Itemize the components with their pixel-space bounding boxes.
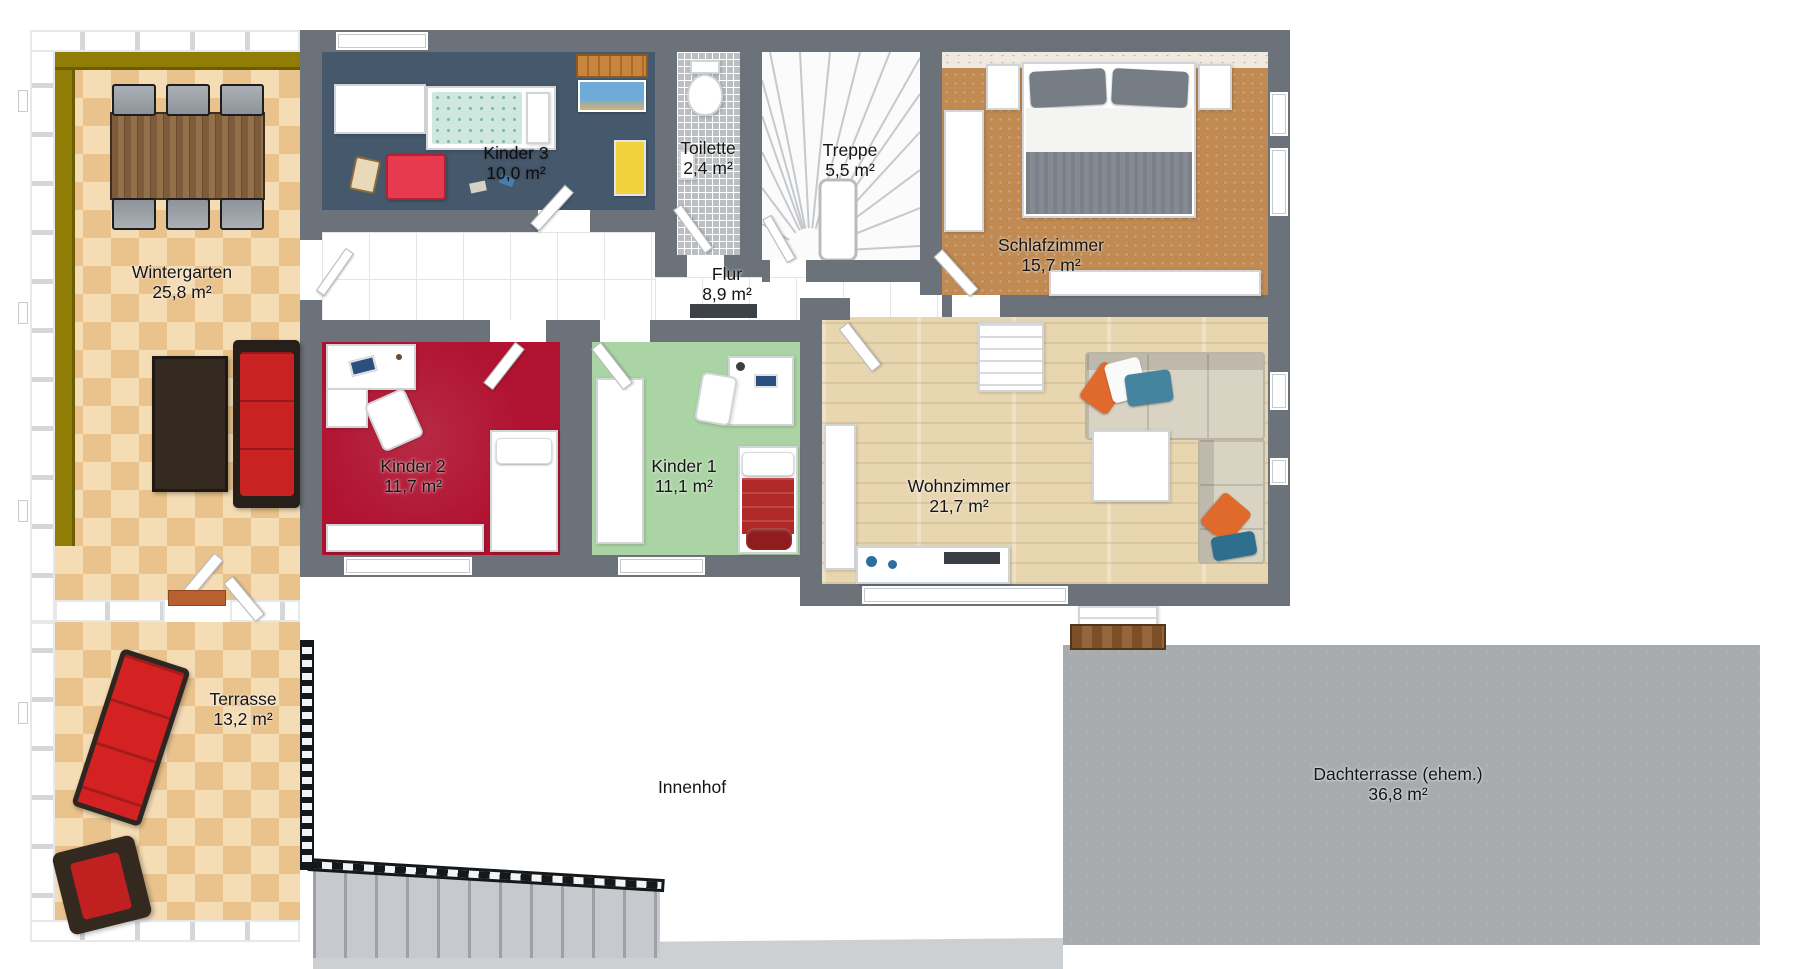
room-name: Dachterrasse (ehem.) — [1313, 764, 1482, 784]
sideboard — [152, 356, 228, 492]
dining-chair — [112, 84, 156, 116]
room-label-wintergarten: Wintergarten 25,8 m² — [132, 262, 232, 302]
window-k1-south — [618, 557, 705, 575]
toilet-bowl — [687, 74, 723, 116]
wall-treppe-bottom — [762, 260, 770, 282]
room-label-innenhof: Innenhof — [658, 777, 726, 797]
room-area: 13,2 m² — [209, 709, 276, 729]
wall-k3-bottom — [322, 210, 538, 232]
wall-toilette-east — [740, 52, 762, 277]
wall-toilette-bottom — [677, 255, 687, 277]
lowboard-kinder2 — [326, 524, 484, 552]
door-steps-upper — [1078, 604, 1158, 626]
wintergarten-window-band-top — [30, 30, 300, 52]
room-label-kinder1: Kinder 1 11,1 m² — [651, 456, 716, 496]
room-label-wohnzimmer: Wohnzimmer 21,7 m² — [908, 476, 1011, 516]
room-name: Wintergarten — [132, 262, 232, 282]
wall-schlafzimmer-bottom — [942, 295, 952, 317]
room-label-treppe: Treppe 5,5 m² — [823, 140, 878, 180]
sofa-red-cushions — [240, 352, 294, 496]
room-name: Treppe — [823, 140, 878, 160]
room-area: 11,1 m² — [651, 476, 716, 496]
room-name: Innenhof — [658, 777, 726, 797]
room-area: 36,8 m² — [1313, 784, 1482, 804]
wall-top — [300, 30, 1290, 52]
coffee-table — [1092, 430, 1170, 502]
dining-chair — [166, 84, 210, 116]
wall-k2-k1 — [560, 320, 592, 577]
bookcase — [978, 322, 1044, 392]
wintergarten-olive-frame-top — [55, 52, 300, 70]
bed-pillow-left — [1029, 68, 1107, 108]
wintergarten-window-band-left — [30, 30, 55, 622]
room-area: 8,9 m² — [702, 284, 752, 304]
toilet-tank — [690, 60, 720, 74]
window-k2-south — [344, 557, 472, 575]
desk-monitor — [754, 374, 778, 388]
window-wohnzimmer-east — [1270, 458, 1288, 485]
terrace-side-railing — [300, 640, 314, 870]
dining-chair — [112, 198, 156, 230]
room-name: Kinder 2 — [380, 456, 445, 476]
wall-k1-wohnzimmer — [800, 298, 822, 606]
bed-kinder3-duvet — [432, 92, 522, 144]
dresser-wood — [576, 54, 648, 78]
room-area: 11,7 m² — [380, 476, 445, 496]
desk-item — [736, 362, 745, 371]
window-wohnzimmer-east — [1270, 372, 1288, 410]
wall-k3-bottom — [590, 210, 655, 232]
counter-bowl — [888, 560, 897, 569]
room-label-terrasse: Terrasse 13,2 m² — [209, 689, 276, 729]
room-name: Kinder 3 — [483, 143, 548, 163]
wardrobe — [334, 84, 426, 134]
window-wohnzimmer-south — [862, 586, 1068, 604]
room-label-toilette: Toilette 2,4 m² — [680, 138, 735, 178]
room-label-schlafzimmer: Schlafzimmer 15,7 m² — [998, 235, 1104, 275]
room-area: 5,5 m² — [823, 160, 878, 180]
wardrobe-schlafzimmer — [944, 110, 984, 232]
door-steps-wood — [1070, 624, 1166, 650]
bed-duvet — [1026, 152, 1192, 214]
room-name: Wohnzimmer — [908, 476, 1011, 496]
room-name: Schlafzimmer — [998, 235, 1104, 255]
pillow-blue — [1124, 369, 1174, 407]
floor-plan: Wintergarten 25,8 m² Kinder 3 10,0 m² To… — [0, 0, 1800, 969]
dining-chair — [166, 198, 210, 230]
desk-corner-return — [326, 388, 368, 428]
wall-k2-top — [546, 320, 560, 342]
bed-kinder1-duvet — [742, 478, 794, 534]
dining-table — [110, 112, 265, 200]
window-schlafzimmer-east — [1270, 148, 1288, 216]
wardrobe-yellow — [614, 140, 646, 196]
wall-toilette-west — [655, 52, 677, 277]
bed-kinder3-pillow — [526, 92, 550, 144]
nightstand-right — [1198, 64, 1232, 110]
wall-schlafzimmer-bottom — [1000, 295, 1268, 317]
window-schlafzimmer-east — [1270, 92, 1288, 136]
room-label-kinder3: Kinder 3 10,0 m² — [483, 143, 548, 183]
bed-pillow-right — [1111, 68, 1189, 108]
wall-west-upper — [300, 52, 322, 240]
wall-k1-top — [592, 320, 600, 342]
wintergarten-olive-frame-left — [55, 52, 75, 546]
room-name: Terrasse — [209, 689, 276, 709]
cooktop — [944, 552, 1000, 564]
wall-west-lower — [300, 300, 322, 577]
dining-chair — [220, 84, 264, 116]
room-flur-floor — [322, 232, 677, 320]
window-sill-tab — [16, 88, 30, 114]
window-k3-top — [336, 32, 428, 50]
desk-mug — [394, 352, 404, 362]
terrasse-doormat — [168, 590, 226, 606]
doormat — [690, 304, 757, 318]
room-area: 21,7 m² — [908, 496, 1011, 516]
bed-kinder2-pillow — [496, 438, 552, 464]
window-sill-tab — [16, 700, 30, 726]
room-area: 10,0 m² — [483, 163, 548, 183]
aquarium-picture — [578, 80, 646, 112]
counter-bowl — [866, 556, 877, 567]
bed-kinder1-pillow — [742, 452, 794, 476]
bed-sheet — [1026, 108, 1192, 152]
wall-flur-stub — [800, 298, 850, 320]
room-area: 25,8 m² — [132, 282, 232, 302]
nightstand-left — [986, 64, 1020, 110]
sideboard-west — [824, 424, 856, 570]
window-sill-tab — [16, 498, 30, 524]
room-area: 15,7 m² — [998, 255, 1104, 275]
dining-chair — [220, 198, 264, 230]
room-label-dachterrasse: Dachterrasse (ehem.) 36,8 m² — [1313, 764, 1482, 804]
wall-k1-top — [650, 320, 800, 342]
room-name: Flur — [702, 264, 752, 284]
room-label-flur: Flur 8,9 m² — [702, 264, 752, 304]
play-table-red — [386, 154, 446, 200]
room-label-kinder2: Kinder 2 11,7 m² — [380, 456, 445, 496]
room-name: Kinder 1 — [651, 456, 716, 476]
wardrobe-kinder1 — [596, 378, 644, 544]
room-name: Toilette — [680, 138, 735, 158]
bed-kinder1-blanket — [746, 528, 792, 550]
window-sill-tab — [16, 300, 30, 326]
terrace-railing-left — [30, 622, 55, 942]
wall-k2-top — [322, 320, 490, 342]
wintergarten-south-rail — [55, 600, 165, 622]
room-area: 2,4 m² — [680, 158, 735, 178]
